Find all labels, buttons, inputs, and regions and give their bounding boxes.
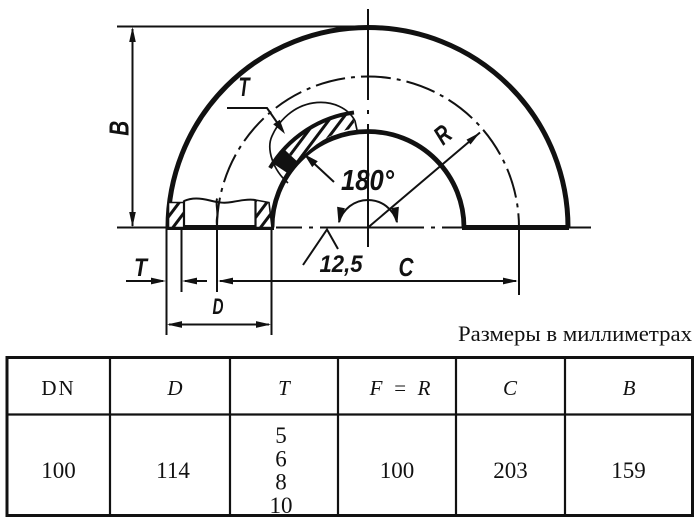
svg-text:Размеры в миллиметрах: Размеры в миллиметрах xyxy=(458,321,692,346)
svg-text:B: B xyxy=(104,121,135,136)
svg-text:T: T xyxy=(134,254,149,282)
svg-text:8: 8 xyxy=(275,470,287,495)
svg-text:100: 100 xyxy=(380,458,415,483)
svg-text:D: D xyxy=(166,376,182,400)
svg-text:10: 10 xyxy=(270,493,293,518)
svg-text:12,5: 12,5 xyxy=(320,251,364,278)
svg-text:C: C xyxy=(399,252,415,282)
svg-text:114: 114 xyxy=(156,458,190,483)
svg-text:159: 159 xyxy=(611,458,646,483)
svg-text:T: T xyxy=(239,72,252,102)
svg-text:B: B xyxy=(623,376,636,400)
svg-text:DN: DN xyxy=(41,376,75,400)
svg-text:6: 6 xyxy=(275,447,287,472)
svg-text:C: C xyxy=(503,376,518,400)
svg-text:5: 5 xyxy=(275,423,287,448)
svg-text:T: T xyxy=(278,376,291,400)
svg-text:R: R xyxy=(428,119,458,151)
svg-text:F = R: F = R xyxy=(369,376,431,400)
svg-text:100: 100 xyxy=(41,458,76,483)
svg-text:203: 203 xyxy=(493,458,528,483)
svg-text:180°: 180° xyxy=(341,165,394,197)
svg-text:D: D xyxy=(213,294,224,319)
